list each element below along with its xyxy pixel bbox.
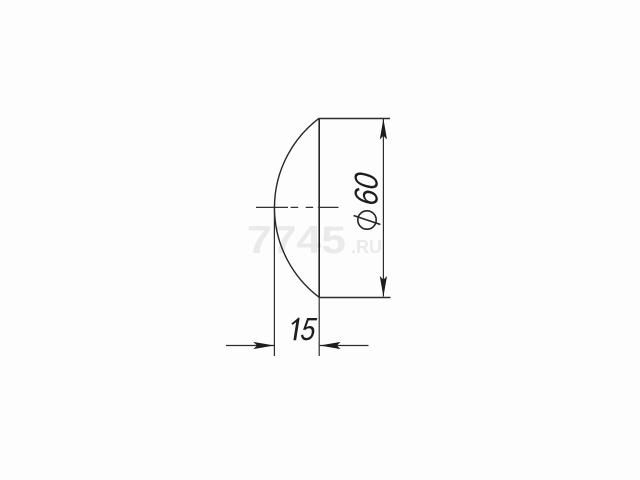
svg-text:7745: 7745	[247, 219, 346, 262]
svg-text:60: 60	[349, 170, 386, 208]
svg-text:.RU: .RU	[351, 236, 382, 257]
